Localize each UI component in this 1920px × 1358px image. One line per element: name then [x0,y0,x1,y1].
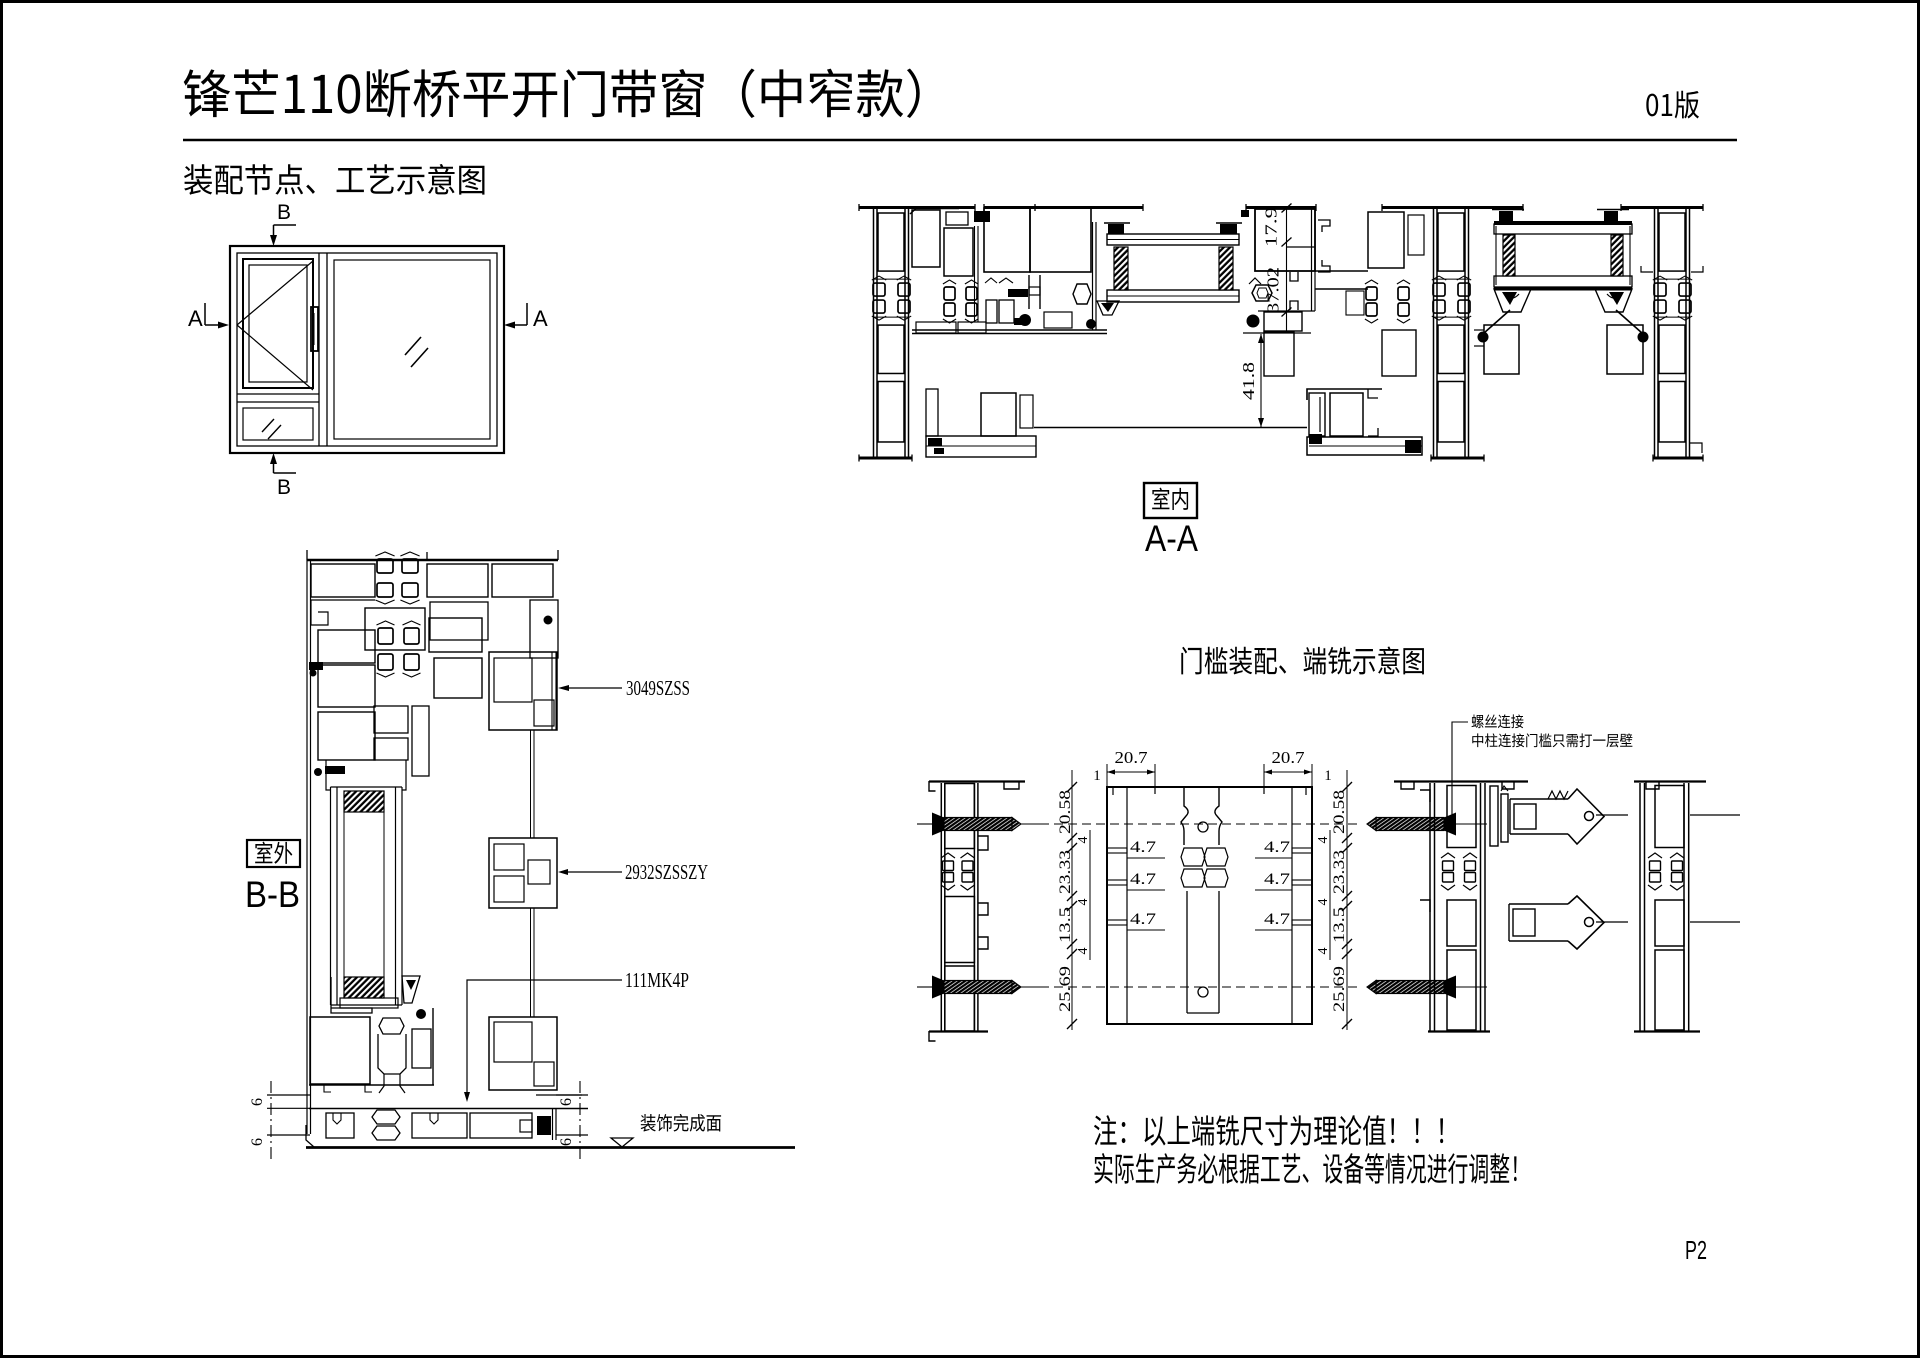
svg-text:4.7: 4.7 [1264,871,1290,888]
svg-text:6: 6 [558,1138,575,1146]
svg-text:4: 4 [1316,837,1331,844]
svg-text:20.58: 20.58 [1331,790,1348,834]
svg-text:20.58: 20.58 [1057,790,1074,834]
svg-text:111MK4P: 111MK4P [625,968,689,992]
svg-text:4.7: 4.7 [1264,911,1290,928]
svg-text:17.9: 17.9 [1262,207,1281,247]
svg-text:4: 4 [1076,948,1091,955]
svg-text:13.5: 13.5 [1057,907,1074,943]
svg-text:13.5: 13.5 [1331,907,1348,943]
svg-text:4: 4 [1316,948,1331,955]
svg-text:1: 1 [1324,768,1332,784]
svg-text:P2: P2 [1685,1235,1707,1265]
svg-text:20.7: 20.7 [1272,748,1306,767]
svg-text:B: B [277,476,291,499]
svg-text:23.33: 23.33 [1331,850,1348,894]
svg-text:4: 4 [1076,837,1091,844]
svg-text:23.33: 23.33 [1057,850,1074,894]
svg-text:25.69: 25.69 [1057,966,1074,1012]
svg-text:1: 1 [1093,768,1101,784]
svg-text:20.7: 20.7 [1115,748,1149,767]
svg-text:B-B: B-B [245,874,300,915]
svg-text:6: 6 [558,1098,575,1106]
svg-text:3049SZSS: 3049SZSS [626,676,690,700]
svg-text:25.69: 25.69 [1331,966,1348,1012]
svg-text:4.7: 4.7 [1130,871,1156,888]
svg-text:2932SZSSZY: 2932SZSSZY [625,860,708,884]
svg-text:6: 6 [249,1098,266,1106]
svg-text:4: 4 [1076,899,1091,906]
svg-text:B: B [277,201,291,224]
svg-text:6: 6 [249,1138,266,1146]
svg-text:A: A [533,306,548,331]
svg-text:A: A [188,306,203,331]
svg-text:4.7: 4.7 [1130,839,1156,856]
svg-text:4: 4 [1316,899,1331,906]
svg-text:37.02: 37.02 [1264,267,1283,313]
svg-text:41.8: 41.8 [1239,362,1258,400]
svg-text:4.7: 4.7 [1130,911,1156,928]
svg-text:4.7: 4.7 [1264,839,1290,856]
svg-text:A-A: A-A [1145,518,1198,559]
